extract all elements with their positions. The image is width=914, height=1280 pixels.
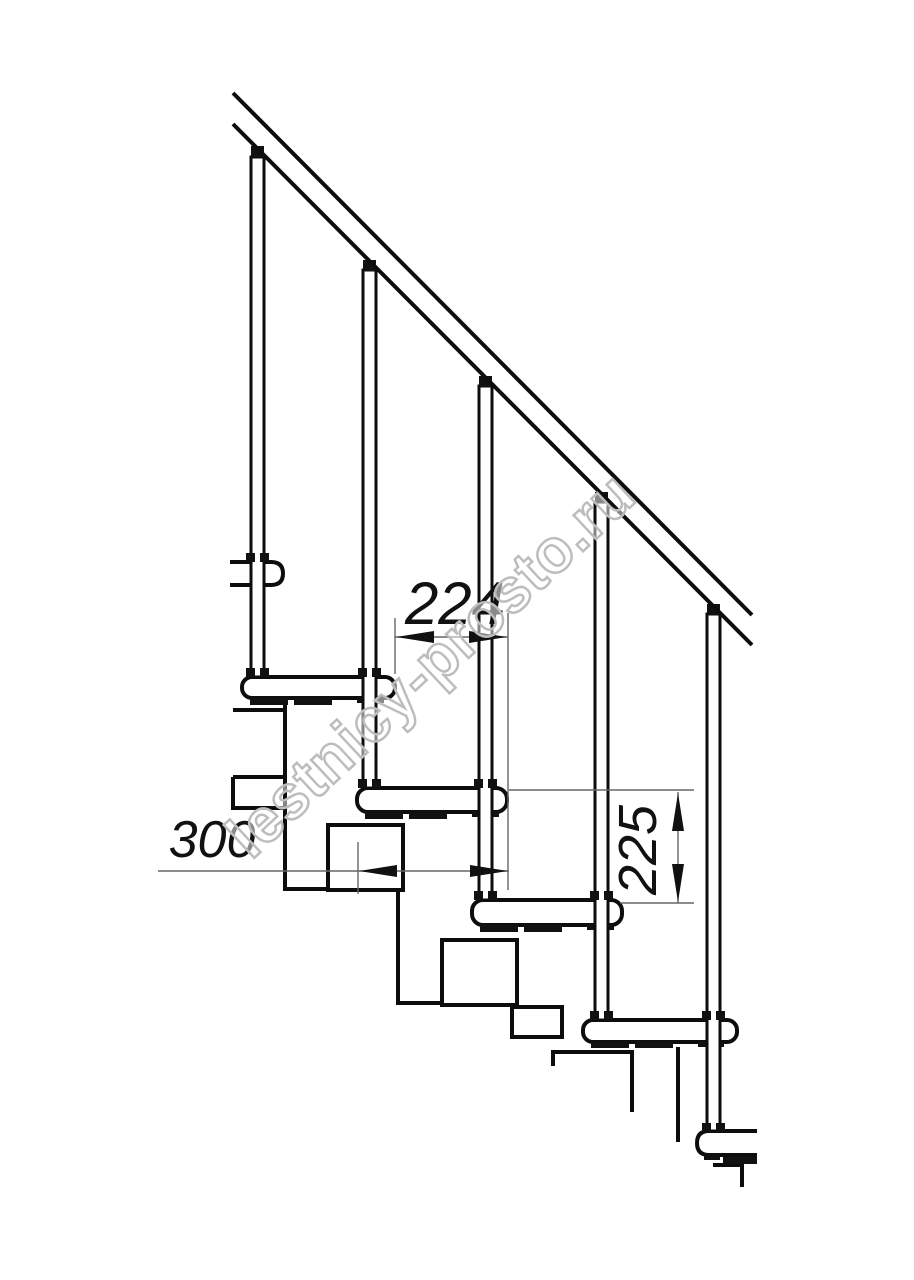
baluster-1-post [251, 157, 264, 677]
staircase-elevation-drawing: 224 300 225 lestnicy-prosto.ru [0, 0, 914, 1280]
stringer-tail-plate [723, 1156, 757, 1164]
staircase-drawing-page: 224 300 225 lestnicy-prosto.ru [0, 0, 914, 1280]
baluster-4-post [595, 502, 608, 1020]
stringer-module-3 [442, 940, 517, 1005]
baluster-1 [251, 146, 264, 677]
stringer-module-2 [328, 825, 403, 890]
stringer-module-3b [512, 1007, 562, 1037]
baluster-4 [595, 492, 608, 1020]
mounting-plate-tread-5 [704, 1153, 720, 1160]
baluster-5 [707, 604, 720, 1131]
baluster-5-post [707, 614, 720, 1131]
mounting-plate-tread-4 [591, 1041, 724, 1048]
dimension-225-label: 225 [608, 804, 668, 896]
tread-5 [697, 1131, 757, 1155]
